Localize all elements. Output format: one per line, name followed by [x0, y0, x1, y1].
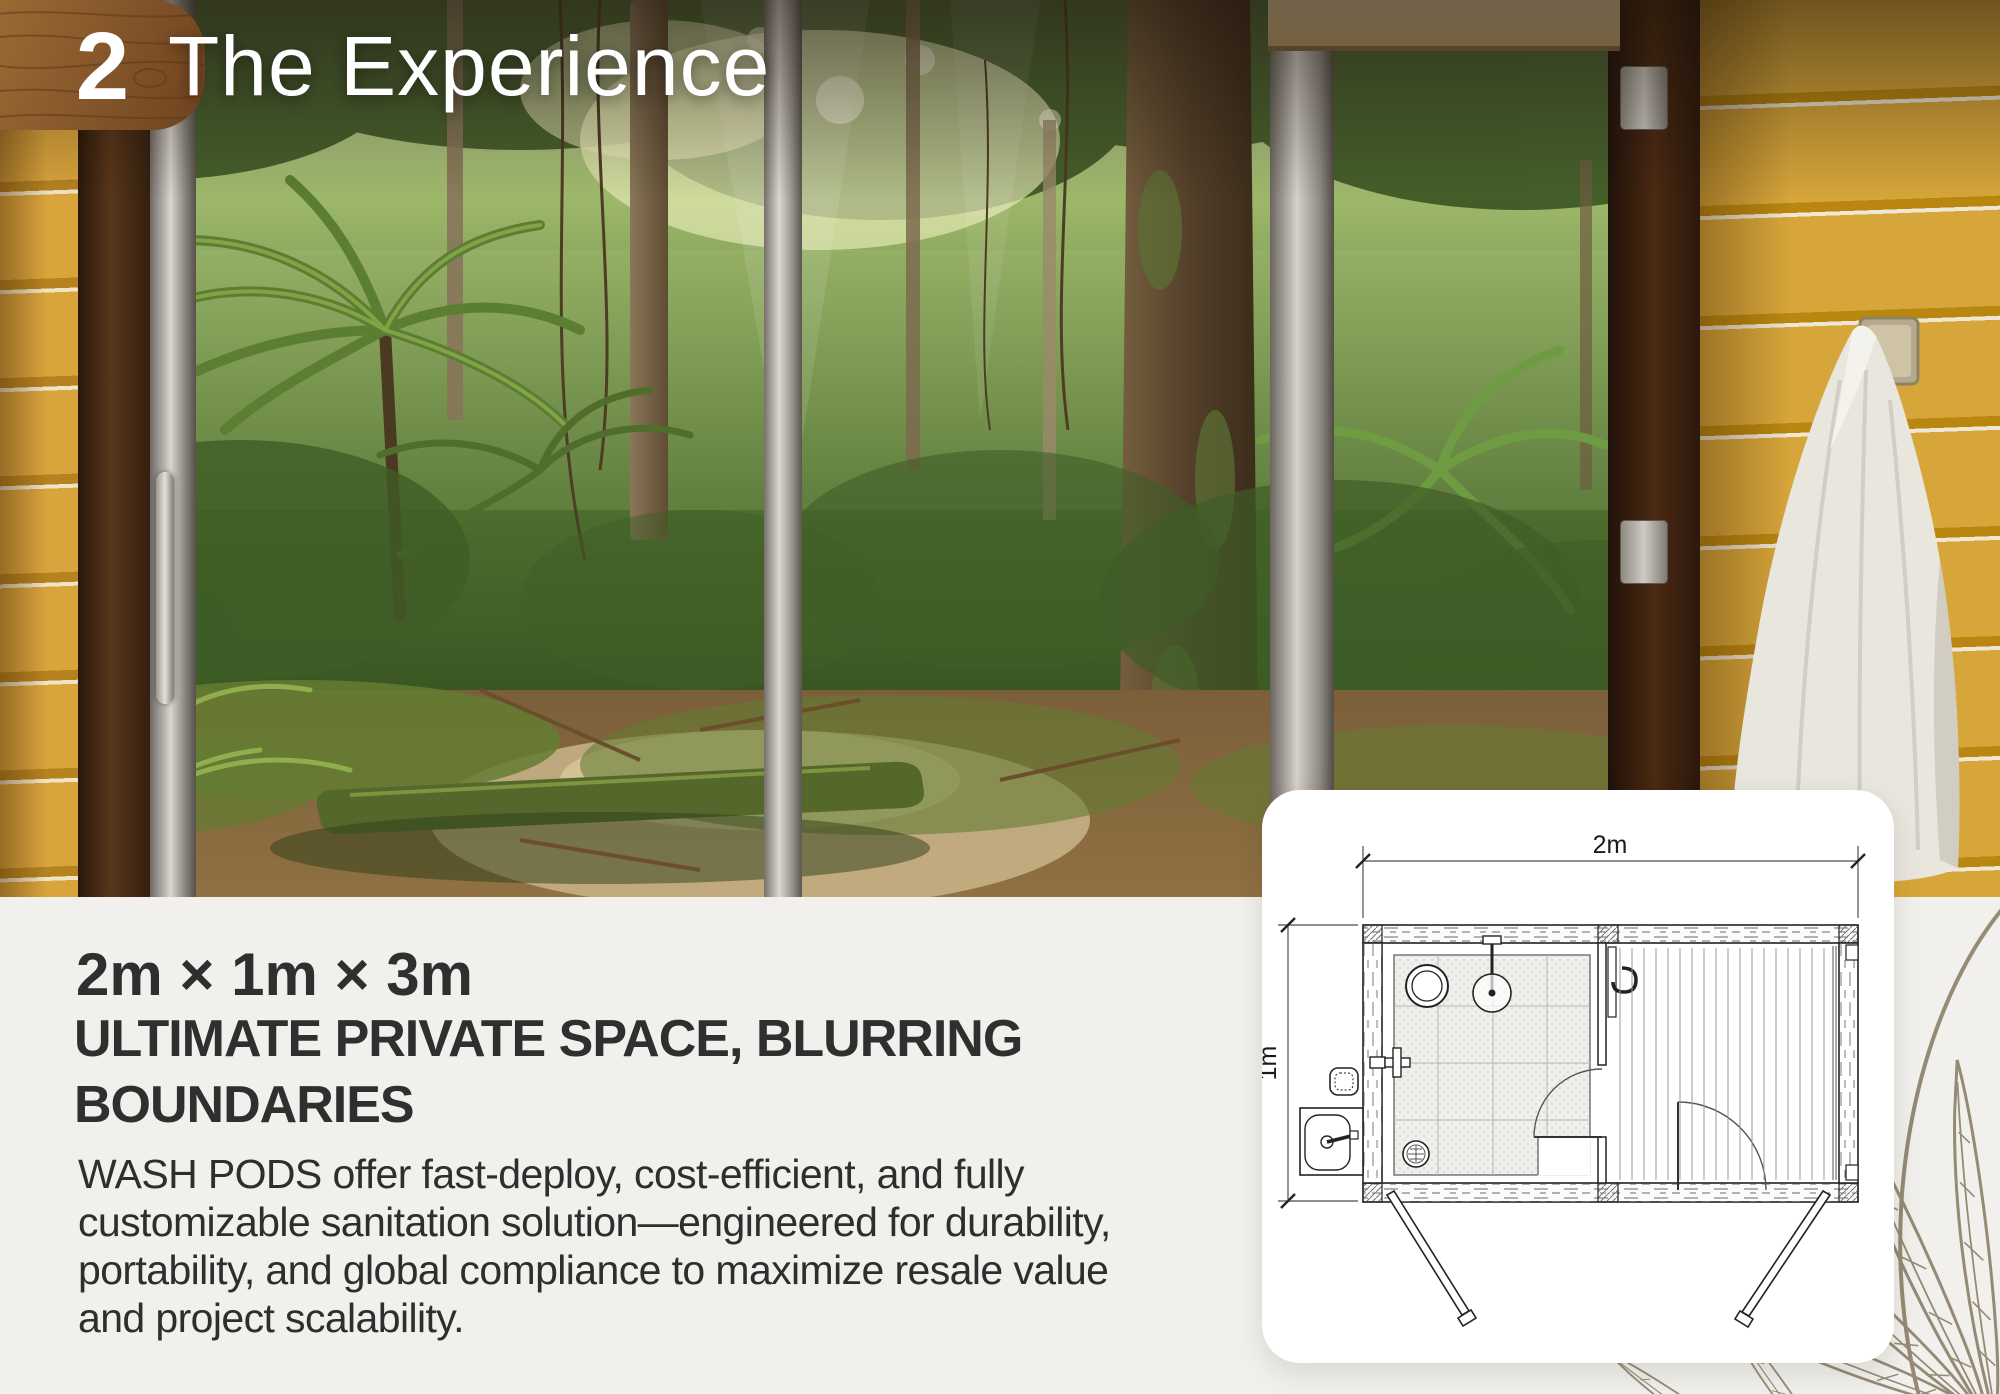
floorplan-card: 2m 1m	[1262, 790, 1894, 1363]
door-handle	[156, 472, 174, 704]
floor-drain	[1403, 1141, 1429, 1167]
floorplan-height-label: 1m	[1262, 1046, 1282, 1081]
floorplan-width-label: 2m	[1593, 831, 1628, 859]
toilet	[1406, 965, 1448, 1007]
soap-dish	[1330, 1068, 1358, 1095]
page-title: The Experience	[168, 0, 770, 128]
sink	[1300, 1108, 1363, 1175]
open-door-leaves	[1387, 1191, 1830, 1327]
headline-line-2: BOUNDARIES	[74, 1072, 1022, 1138]
hero-photo	[0, 0, 2000, 897]
entry-door-swing	[1678, 1102, 1766, 1190]
headline-line-1: ULTIMATE PRIVATE SPACE, BLURRING	[74, 1006, 1022, 1072]
body-paragraph: WASH PODS offer fast-deploy, cost-effici…	[78, 1150, 1158, 1342]
headline: ULTIMATE PRIVATE SPACE, BLURRING BOUNDAR…	[74, 1006, 1022, 1138]
hinge-icon	[1620, 520, 1668, 584]
slide: 2 The Experience	[0, 0, 2000, 1394]
deck-floor	[1620, 948, 1824, 1180]
floorplan-drawing: 2m 1m	[1262, 790, 1894, 1363]
partition-wall	[1598, 943, 1616, 1183]
dimensions-heading: 2m × 1m × 3m	[76, 940, 473, 1009]
